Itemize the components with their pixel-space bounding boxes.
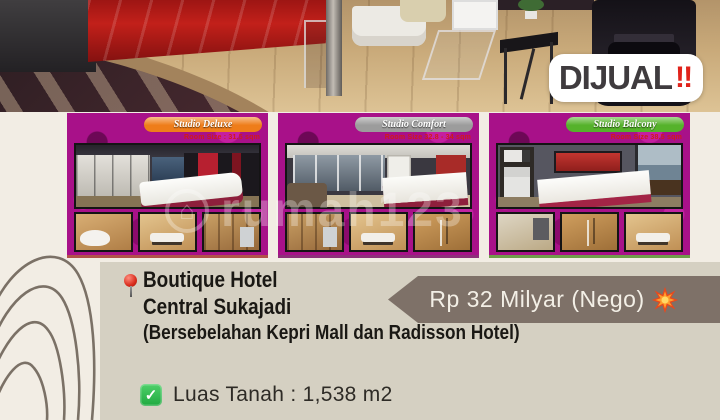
room-type-label: Studio Comfort bbox=[382, 119, 446, 130]
price-ribbon: Rp 32 Milyar (Nego) bbox=[388, 276, 720, 323]
room-type-banner: Studio Balcony bbox=[566, 117, 684, 132]
exclamation-icon: ‼ bbox=[675, 61, 693, 95]
card-edge-strip bbox=[489, 255, 690, 258]
fingerprint-decoration bbox=[0, 240, 100, 420]
vanity-photo bbox=[349, 212, 408, 252]
room-card-studio-balcony: Studio Balcony Room Size 38.5 sqm bbox=[489, 113, 690, 258]
room-size-label: Room Size 38.5 sqm bbox=[611, 134, 682, 141]
collision-spark-icon bbox=[651, 286, 679, 314]
kitchen-photo bbox=[202, 212, 261, 252]
pillar bbox=[326, 0, 342, 96]
card-edge-strip bbox=[67, 255, 268, 258]
room-card-studio-comfort: Studio Comfort Room Size 32.8 - 34 sqm bbox=[278, 113, 479, 258]
entrance-wall bbox=[0, 0, 96, 72]
room-type-label: Studio Balcony bbox=[593, 119, 656, 130]
wardrobe-photo bbox=[560, 212, 619, 252]
beige-chair bbox=[400, 0, 446, 22]
room-size-label: Room Size 32.8 - 34 sqm bbox=[385, 134, 471, 141]
land-area-text: Luas Tanah : 1,538 m2 bbox=[173, 383, 393, 407]
potted-plant bbox=[518, 0, 544, 20]
land-area-row: Luas Tanah : 1,538 m2 bbox=[140, 383, 393, 407]
room-type-banner: Studio Comfort bbox=[355, 117, 473, 132]
chrome-rack bbox=[304, 20, 328, 88]
room-size-label: Room Size : 31.5 sqm bbox=[184, 134, 260, 141]
kitchen-photo bbox=[496, 212, 555, 252]
sale-label: DIJUAL bbox=[559, 59, 672, 97]
for-sale-badge: DIJUAL ‼ bbox=[549, 54, 703, 102]
bedroom-photo bbox=[74, 143, 261, 209]
room-card-studio-deluxe: Studio Deluxe Room Size : 31.5 sqm bbox=[67, 113, 268, 258]
location-pin-icon bbox=[124, 274, 138, 300]
room-type-banner: Studio Deluxe bbox=[144, 117, 262, 132]
bedroom-photo bbox=[496, 143, 683, 209]
check-icon bbox=[140, 384, 162, 406]
room-cards-row: Studio Deluxe Room Size : 31.5 sqm Studi… bbox=[67, 113, 690, 258]
kitchen-photo bbox=[285, 212, 344, 252]
card-edge-strip bbox=[278, 255, 479, 258]
bathtub-photo bbox=[74, 212, 133, 252]
shower-photo bbox=[413, 212, 472, 252]
bedroom-photo bbox=[285, 143, 472, 209]
price-text: Rp 32 Milyar (Nego) bbox=[429, 286, 644, 313]
room-type-label: Studio Deluxe bbox=[174, 119, 233, 130]
flyer-canvas: DIJUAL ‼ Studio Deluxe Room Size : 31.5 … bbox=[0, 0, 720, 420]
white-cabinet bbox=[452, 0, 498, 30]
hotel-note: (Bersebelahan Kepri Mall dan Radisson Ho… bbox=[143, 320, 520, 347]
sink-photo bbox=[138, 212, 197, 252]
bathroom-photo bbox=[624, 212, 683, 252]
